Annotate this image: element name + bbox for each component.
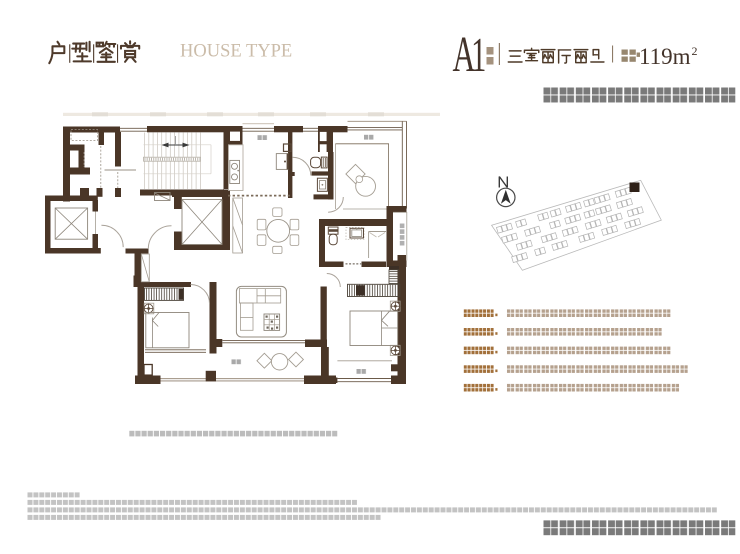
svg-text:1: 1: [471, 28, 486, 82]
svg-text:119m: 119m: [639, 44, 691, 69]
svg-text:2: 2: [692, 44, 698, 58]
svg-text:HOUSE TYPE: HOUSE TYPE: [180, 42, 292, 62]
